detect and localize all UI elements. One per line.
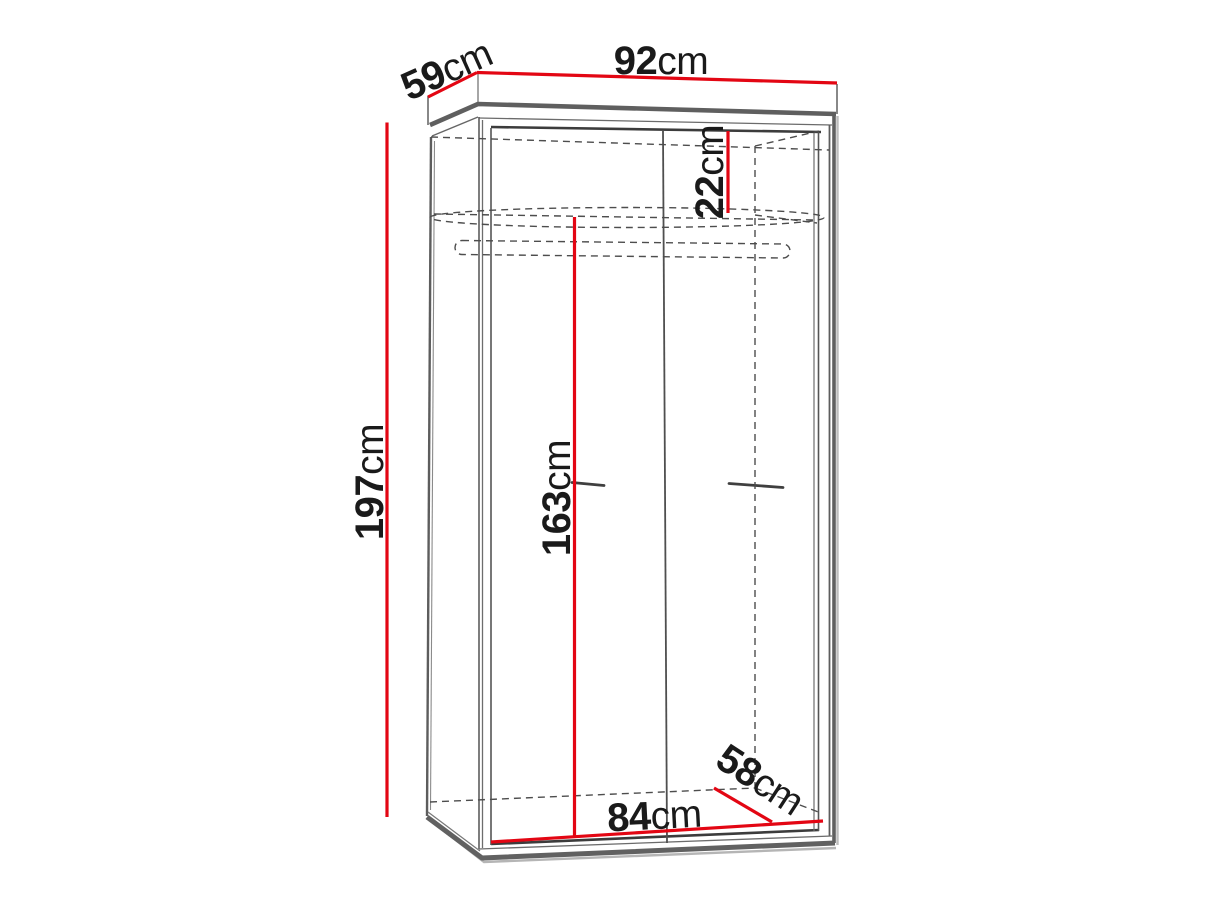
right-door-handle [729, 484, 783, 488]
frame-top-edge [491, 127, 821, 132]
label-top-section-height: 22cm [688, 125, 732, 220]
label-height: 197cm [348, 424, 392, 540]
wardrobe-outline [427, 74, 838, 862]
dimension-labels: 92cm 59cm 197cm 22cm 163cm 84cm 58cm [348, 31, 812, 841]
hanging-rail-hidden [455, 241, 790, 259]
label-top-depth: 59cm [395, 31, 499, 110]
label-interior-height: 163cm [535, 440, 579, 556]
top-right-interior-diagonal [755, 131, 819, 146]
wardrobe-dimension-diagram: 92cm 59cm 197cm 22cm 163cm 84cm 58cm [0, 0, 1219, 914]
label-interior-depth: 58cm [708, 736, 811, 824]
hidden-lines [430, 131, 829, 813]
body-left-back-edge [427, 137, 431, 816]
dimension-lines [387, 73, 837, 843]
diagram-canvas: 92cm 59cm 197cm 22cm 163cm 84cm 58cm [0, 0, 1219, 914]
body-front-top-edge [479, 118, 832, 125]
label-interior-width: 84cm [606, 792, 703, 841]
door-center-split [663, 131, 667, 843]
top-slab-bottom-edge [430, 104, 836, 125]
label-top-width: 92cm [614, 39, 709, 83]
body-left-bottom-thin-edge [428, 812, 480, 851]
